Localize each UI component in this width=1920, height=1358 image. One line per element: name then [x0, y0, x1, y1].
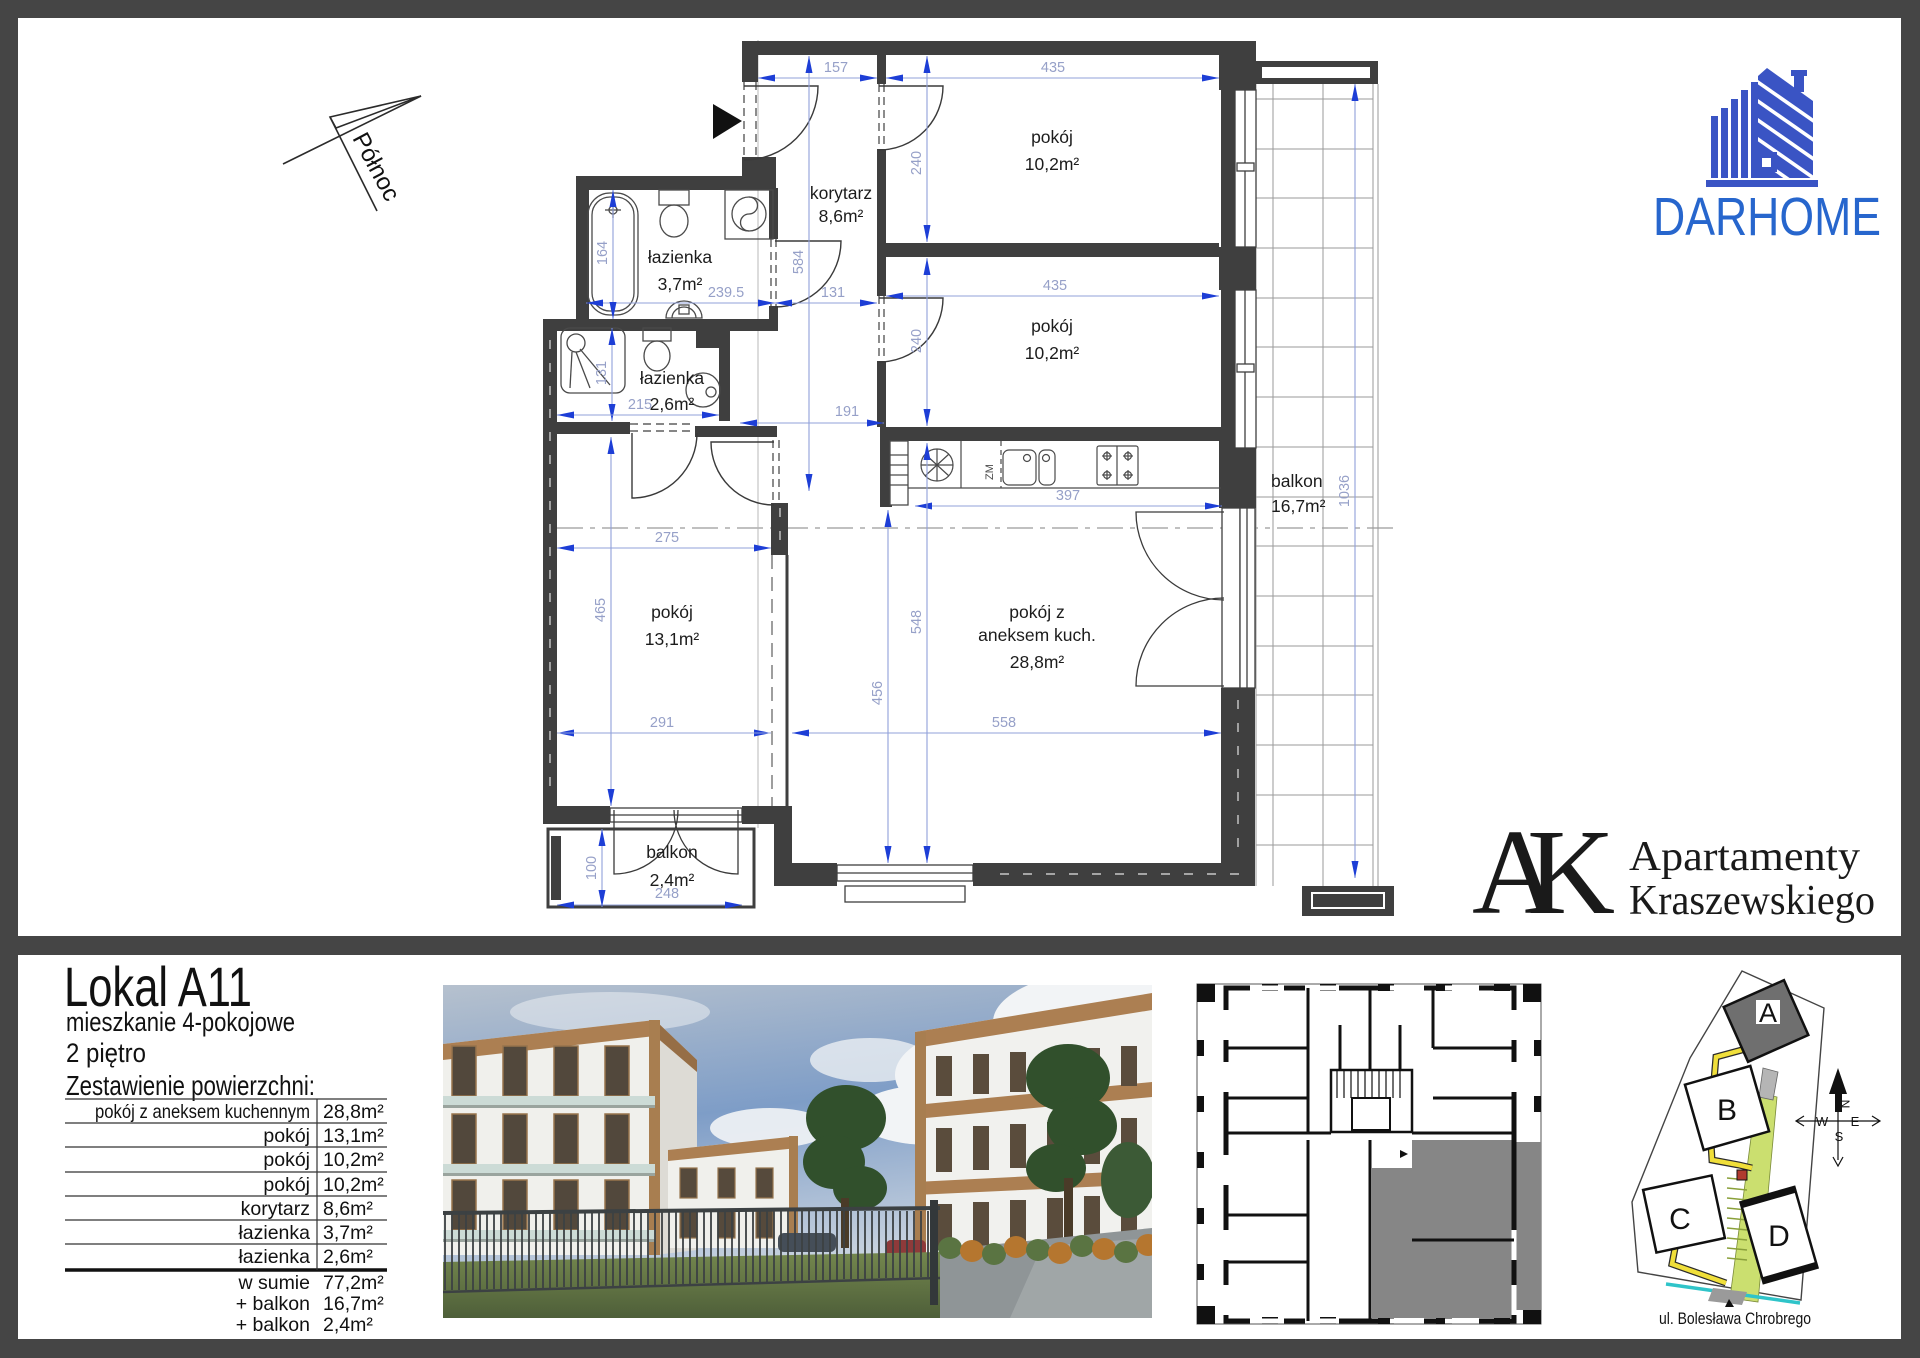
svg-text:pokój: pokój [263, 1174, 310, 1196]
svg-text:aneksem kuch.: aneksem kuch. [978, 625, 1096, 645]
svg-text:28,8m²: 28,8m² [1010, 652, 1065, 672]
svg-text:435: 435 [1041, 60, 1065, 76]
svg-text:+ balkon: + balkon [236, 1293, 310, 1315]
svg-text:łazienka: łazienka [648, 247, 712, 267]
svg-text:pokój z aneksem kuchennym: pokój z aneksem kuchennym [95, 1101, 310, 1123]
svg-text:łazienka: łazienka [238, 1246, 310, 1268]
svg-text:S: S [1835, 1129, 1844, 1144]
svg-text:8,6m²: 8,6m² [819, 206, 864, 226]
svg-text:ZM: ZM [984, 464, 996, 480]
svg-text:215: 215 [628, 397, 652, 413]
svg-text:16,7m²: 16,7m² [323, 1293, 384, 1315]
svg-text:2,6m²: 2,6m² [650, 394, 695, 414]
svg-text:584: 584 [791, 250, 807, 274]
svg-text:ul. Bolesława Chrobrego: ul. Bolesława Chrobrego [1659, 1309, 1811, 1328]
svg-text:240: 240 [909, 329, 925, 353]
svg-text:K: K [1527, 805, 1615, 940]
svg-text:1036: 1036 [1337, 475, 1353, 507]
svg-text:pokój: pokój [1031, 316, 1073, 336]
svg-text:291: 291 [650, 715, 674, 731]
svg-text:pokój: pokój [263, 1149, 310, 1171]
svg-text:558: 558 [992, 715, 1016, 731]
svg-text:131: 131 [821, 285, 845, 301]
svg-text:2 piętro: 2 piętro [66, 1038, 146, 1068]
svg-text:8,6m²: 8,6m² [323, 1198, 373, 1220]
svg-text:77,2m²: 77,2m² [323, 1272, 384, 1294]
svg-text:balkon: balkon [1271, 471, 1323, 491]
svg-text:191: 191 [835, 404, 859, 420]
svg-text:10,2m²: 10,2m² [1025, 154, 1080, 174]
svg-text:248: 248 [655, 886, 679, 902]
svg-text:548: 548 [909, 610, 925, 634]
svg-text:13,1m²: 13,1m² [645, 629, 700, 649]
svg-text:Kraszewskiego: Kraszewskiego [1629, 878, 1875, 924]
svg-text:131: 131 [594, 361, 610, 385]
svg-text:10,2m²: 10,2m² [323, 1174, 384, 1196]
svg-text:pokój: pokój [1031, 127, 1073, 147]
svg-text:13,1m²: 13,1m² [323, 1125, 384, 1147]
svg-text:B: B [1717, 1094, 1737, 1127]
svg-text:Apartamenty: Apartamenty [1629, 834, 1860, 880]
svg-text:balkon: balkon [646, 842, 698, 862]
svg-text:239.5: 239.5 [708, 285, 744, 301]
svg-text:DARHOME: DARHOME [1653, 187, 1881, 247]
svg-text:A: A [1759, 998, 1777, 1028]
svg-text:mieszkanie 4-pokojowe: mieszkanie 4-pokojowe [66, 1007, 295, 1037]
svg-text:157: 157 [824, 60, 848, 76]
svg-text:3,7m²: 3,7m² [658, 274, 703, 294]
svg-text:pokój: pokój [263, 1125, 310, 1147]
svg-text:łazienka: łazienka [640, 368, 704, 388]
svg-text:240: 240 [909, 151, 925, 175]
svg-text:w sumie: w sumie [237, 1272, 310, 1294]
svg-text:10,2m²: 10,2m² [1025, 343, 1080, 363]
svg-text:C: C [1669, 1203, 1691, 1236]
svg-text:465: 465 [593, 598, 609, 622]
svg-text:E: E [1851, 1114, 1860, 1129]
svg-text:+ balkon: + balkon [236, 1314, 310, 1336]
svg-text:10,2m²: 10,2m² [323, 1149, 384, 1171]
svg-text:3,7m²: 3,7m² [323, 1222, 373, 1244]
svg-text:korytarz: korytarz [810, 183, 872, 203]
svg-text:435: 435 [1043, 278, 1067, 294]
svg-text:2,6m²: 2,6m² [323, 1246, 373, 1268]
svg-text:100: 100 [584, 856, 600, 880]
svg-text:275: 275 [655, 530, 679, 546]
svg-text:N: N [1838, 1100, 1852, 1109]
svg-text:Zestawienie powierzchni:: Zestawienie powierzchni: [66, 1070, 315, 1101]
svg-text:korytarz: korytarz [241, 1198, 310, 1220]
svg-text:D: D [1768, 1220, 1790, 1253]
svg-text:456: 456 [870, 681, 886, 705]
svg-text:łazienka: łazienka [238, 1222, 310, 1244]
svg-text:2,4m²: 2,4m² [323, 1314, 373, 1336]
svg-text:pokój: pokój [651, 602, 693, 622]
svg-text:28,8m²: 28,8m² [323, 1101, 384, 1123]
svg-text:16,7m²: 16,7m² [1271, 496, 1326, 516]
svg-text:W: W [1816, 1114, 1829, 1129]
svg-text:pokój z: pokój z [1009, 602, 1064, 622]
svg-text:397: 397 [1056, 488, 1080, 504]
svg-text:164: 164 [595, 241, 611, 265]
